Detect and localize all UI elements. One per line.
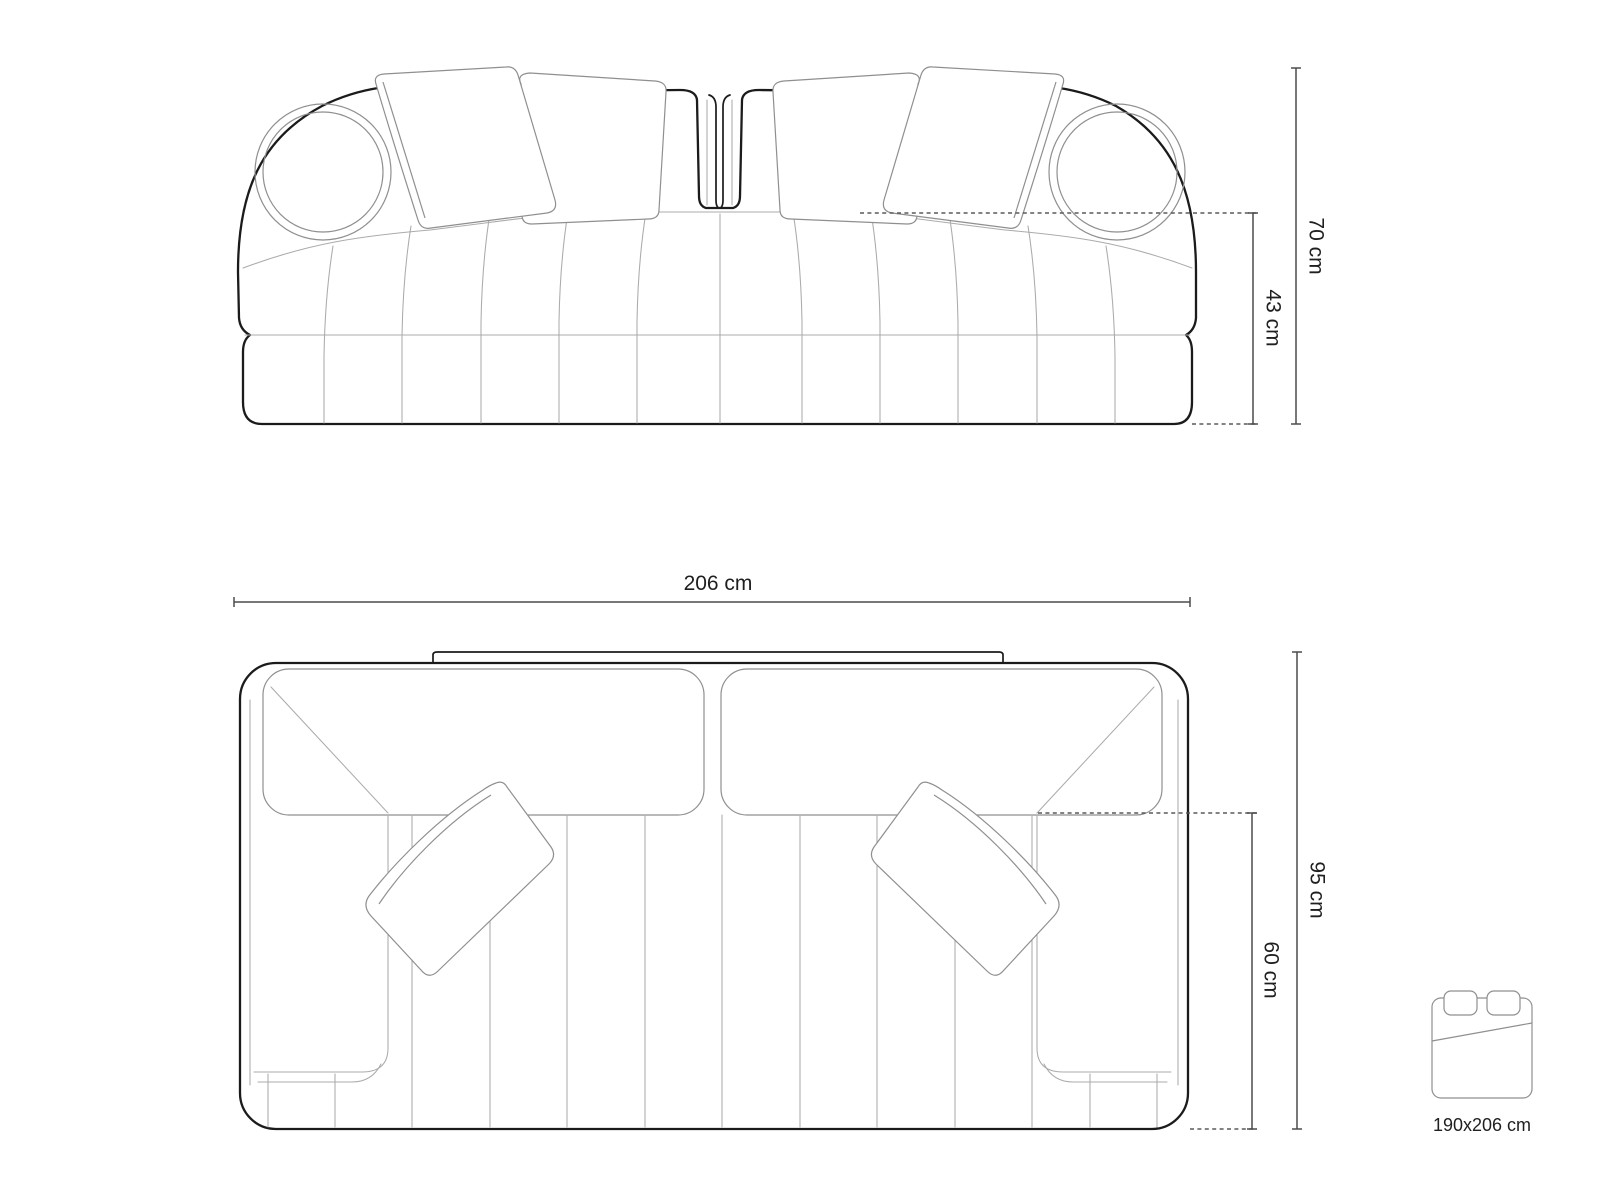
dimension-label-total-depth: 95 cm [1305,861,1328,918]
dimension-total-depth: 95 cm [1292,652,1328,1129]
backrest-center-split [707,95,732,208]
sofa-dimension-drawing: 70 cm 43 cm 206 cm 95 cm [0,0,1600,1200]
top-plan-view [240,652,1188,1129]
dimension-total-width: 206 cm [234,572,1190,607]
sofa-front-outline [238,85,1196,424]
bed-icon [1432,991,1532,1098]
sleeping-function: 190x206 cm [1432,991,1532,1135]
dimension-total-height: 70 cm [1291,68,1327,424]
dimension-label-total-width: 206 cm [684,572,753,595]
sleeping-area-label: 190x206 cm [1433,1115,1531,1135]
front-elevation-view [238,67,1196,424]
plan-back-rail [433,652,1003,663]
dimension-label-seat-height: 43 cm [1261,289,1284,346]
dimension-label-seat-depth: 60 cm [1259,941,1282,998]
dimension-label-total-height: 70 cm [1304,217,1327,274]
